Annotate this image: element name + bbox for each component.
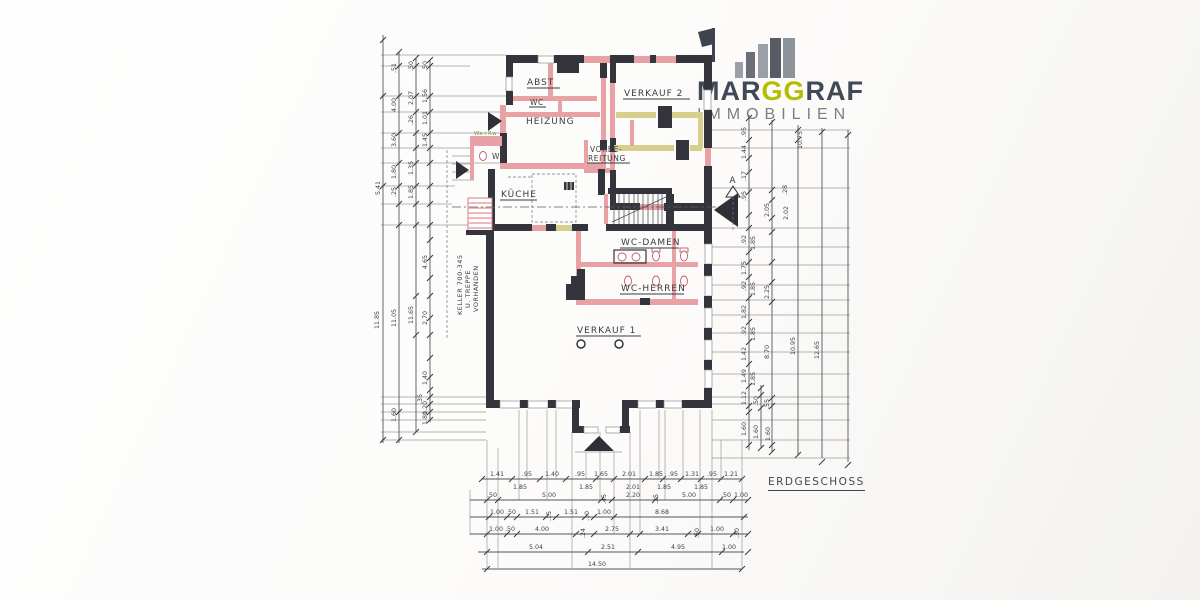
dim-label: .15 [546,511,553,521]
dim-label: 2.01 [622,471,636,478]
dim-label: 5.00 [542,492,556,499]
dim-label: 8.70 [764,345,771,359]
room-label-heizung: HEIZUNG [526,117,575,127]
dim-label: 1.85 [750,282,757,296]
chimney [566,269,585,300]
dim-label: .50 [422,61,429,71]
dim-label: .55 [764,399,771,409]
dim-label: 2.75 [605,526,619,533]
dim-label: .45 [601,494,608,504]
dim-label: 5.04 [529,544,543,551]
extension-lines [381,55,850,568]
dim-label: .17 [741,171,748,181]
dim-label: 1.85 [408,185,415,199]
dim-label: .92 [741,235,748,245]
dim-label: 1.85 [649,471,663,478]
dim-label: 1.00 [490,509,504,516]
dim-label: 1.80 [391,165,398,179]
dim-label: .24 [580,528,587,538]
dim-label: .95 [668,471,678,478]
cellar-note-line3: VORHANDEN [472,265,480,312]
room-label-reitung: REITUNG [588,154,626,163]
room-label-wc-herren: WC-HERREN [621,284,686,294]
dim-label: 1.40 [545,471,559,478]
dim-label: 1.00 [722,544,736,551]
dim-label: 5.00 [682,492,696,499]
dim-label: 4.65 [422,255,429,269]
floor-title: ERDGESCHOSS [768,476,865,491]
dim-label: 1.85 [657,484,671,491]
dim-label: .95 [575,471,585,478]
dim-label: .50 [694,528,701,538]
dim-label: 3.41 [655,526,669,533]
dim-label: .25 [391,187,398,197]
dim-label: .92 [741,281,748,291]
dim-label: 11.05 [391,309,398,327]
dim-label: 1.85 [513,484,527,491]
dim-label: 1.60 [765,427,772,441]
entrance-arrow-icon [584,436,614,451]
entry-arrow-icon [488,112,502,131]
dim-label: 1.31 [685,471,699,478]
middle-band-walls [488,224,712,231]
dim-label: 2.01 [626,484,640,491]
room-label-abst: ABST [527,78,554,88]
cellar-note-line2: U. TREPPE [464,270,472,308]
dim-label: 3.60 [391,133,398,147]
right-dimension-labels: .95 1.44 .17 .95 10.75 .28 2.05 2.02 .92… [741,127,821,441]
dim-label: 1.51 [525,509,539,516]
room-label-wc-damen: WC-DAMEN [621,238,681,248]
dim-label: .25 [653,494,660,504]
dim-label: 1.65 [594,471,608,478]
dim-label: 1.60 [753,425,760,439]
dim-label: .26 [408,115,415,125]
dim-label: .28 [782,185,789,195]
plumbing-note: Wa+Rw [474,131,497,137]
dim-label: 8.68 [655,509,669,516]
dim-label: 1.00 [597,509,611,516]
dim-label: 1.60 [741,422,748,436]
upper-block-walls [488,55,712,229]
dim-label: 1.01 [422,111,429,125]
room-label-wc-b: WC [492,152,506,161]
dim-label: 1.12 [741,391,748,405]
dim-label: 1.85 [579,484,593,491]
dim-label: .50 [506,509,516,516]
dim-label: 1.60 [391,408,398,422]
dim-label: .50 [753,396,760,406]
dim-label: .95 [707,471,717,478]
dim-label: 1.51 [564,509,578,516]
section-markers: A [452,176,740,452]
dim-label: 1.56 [422,89,429,103]
section-letter: A [729,176,736,186]
dim-label: 14.50 [588,561,606,568]
scanned-floorplan-sheet: MARGGRAF IMMOBILIEN ERDGESCHOSS [0,0,1200,600]
dim-label: 2.20 [626,492,640,499]
drain-symbol [564,182,574,190]
floorplan-drawing: 1.41 .95 1.40 .95 1.65 2.01 1.85 .95 1.3… [0,0,1200,600]
dim-label: .51 [391,63,398,73]
dim-label: 4.95 [671,544,685,551]
dim-label: .50 [721,492,731,499]
dim-label: 2.51 [601,544,615,551]
dim-label: 5.41 [375,181,382,195]
dim-label: .95 [741,127,748,137]
dim-label: 1.49 [741,369,748,383]
dim-label: 2.70 [422,311,429,325]
dim-label: 1.80 [422,411,429,425]
dim-label: 2.07 [408,91,415,105]
column [577,340,585,348]
dim-label: 1.85 [750,327,757,341]
dim-label: 1.40 [422,371,429,385]
dim-label: .95 [522,471,532,478]
dim-label: 4.00 [391,98,398,112]
dim-label: 12.65 [814,341,821,359]
dim-label: 1.85 [750,372,757,386]
left-dimension-labels: .51 .50 .50 4.00 2.07 1.56 .26 1.01 3.60… [374,61,429,425]
dim-label: .50 [505,526,515,533]
dim-label: .10 [584,511,591,521]
column [615,340,623,348]
dim-label: 1.45 [422,133,429,147]
room-label-vorbe: VORBE- [590,145,622,154]
dim-label: 1.85 [694,484,708,491]
dim-label: 1.00 [734,492,748,499]
dim-label: 1.82 [741,305,748,319]
dim-label: 2.05 [764,203,771,217]
room-label-verkauf1: VERKAUF 1 [577,326,636,336]
room-label-kueche: KÜCHE [501,189,537,200]
dim-label: 2.25 [764,285,771,299]
dim-label: 1.44 [741,145,748,159]
cellar-note: KELLER 700-345 U. TREPPE VORHANDEN [456,255,480,315]
dim-label: 10.75 [797,131,804,149]
section-arrow-icon [714,193,738,227]
dim-label: 11.85 [374,311,381,329]
dim-label: .50 [408,61,415,71]
cellar-note-line1: KELLER 700-345 [456,255,464,315]
dim-label: 1.75 [741,261,748,275]
dim-label: 1.35 [408,161,415,175]
bottom-dimension-labels: 1.41 .95 1.40 .95 1.65 2.01 1.85 .95 1.3… [487,471,748,568]
dim-label: 4.00 [535,526,549,533]
dim-label: 1.41 [490,471,504,478]
room-label-wc-a: WC [530,98,544,107]
dim-label: 1.21 [724,471,738,478]
dim-label: 1.00 [489,526,503,533]
dim-label: 2.02 [783,206,790,220]
dim-label: .30 [734,528,741,538]
dim-label: .50 [487,492,497,499]
cellar-stairs [466,198,494,235]
dim-label: 1.85 [750,236,757,250]
dim-label: .92 [741,326,748,336]
room-label-verkauf2: VERKAUF 2 [624,89,683,99]
dim-label: .95 [741,191,748,201]
dim-label: 11.65 [408,306,415,324]
dim-label: 10.95 [790,337,797,355]
dim-label: 1.42 [741,347,748,361]
dim-label: 1.00 [710,526,724,533]
